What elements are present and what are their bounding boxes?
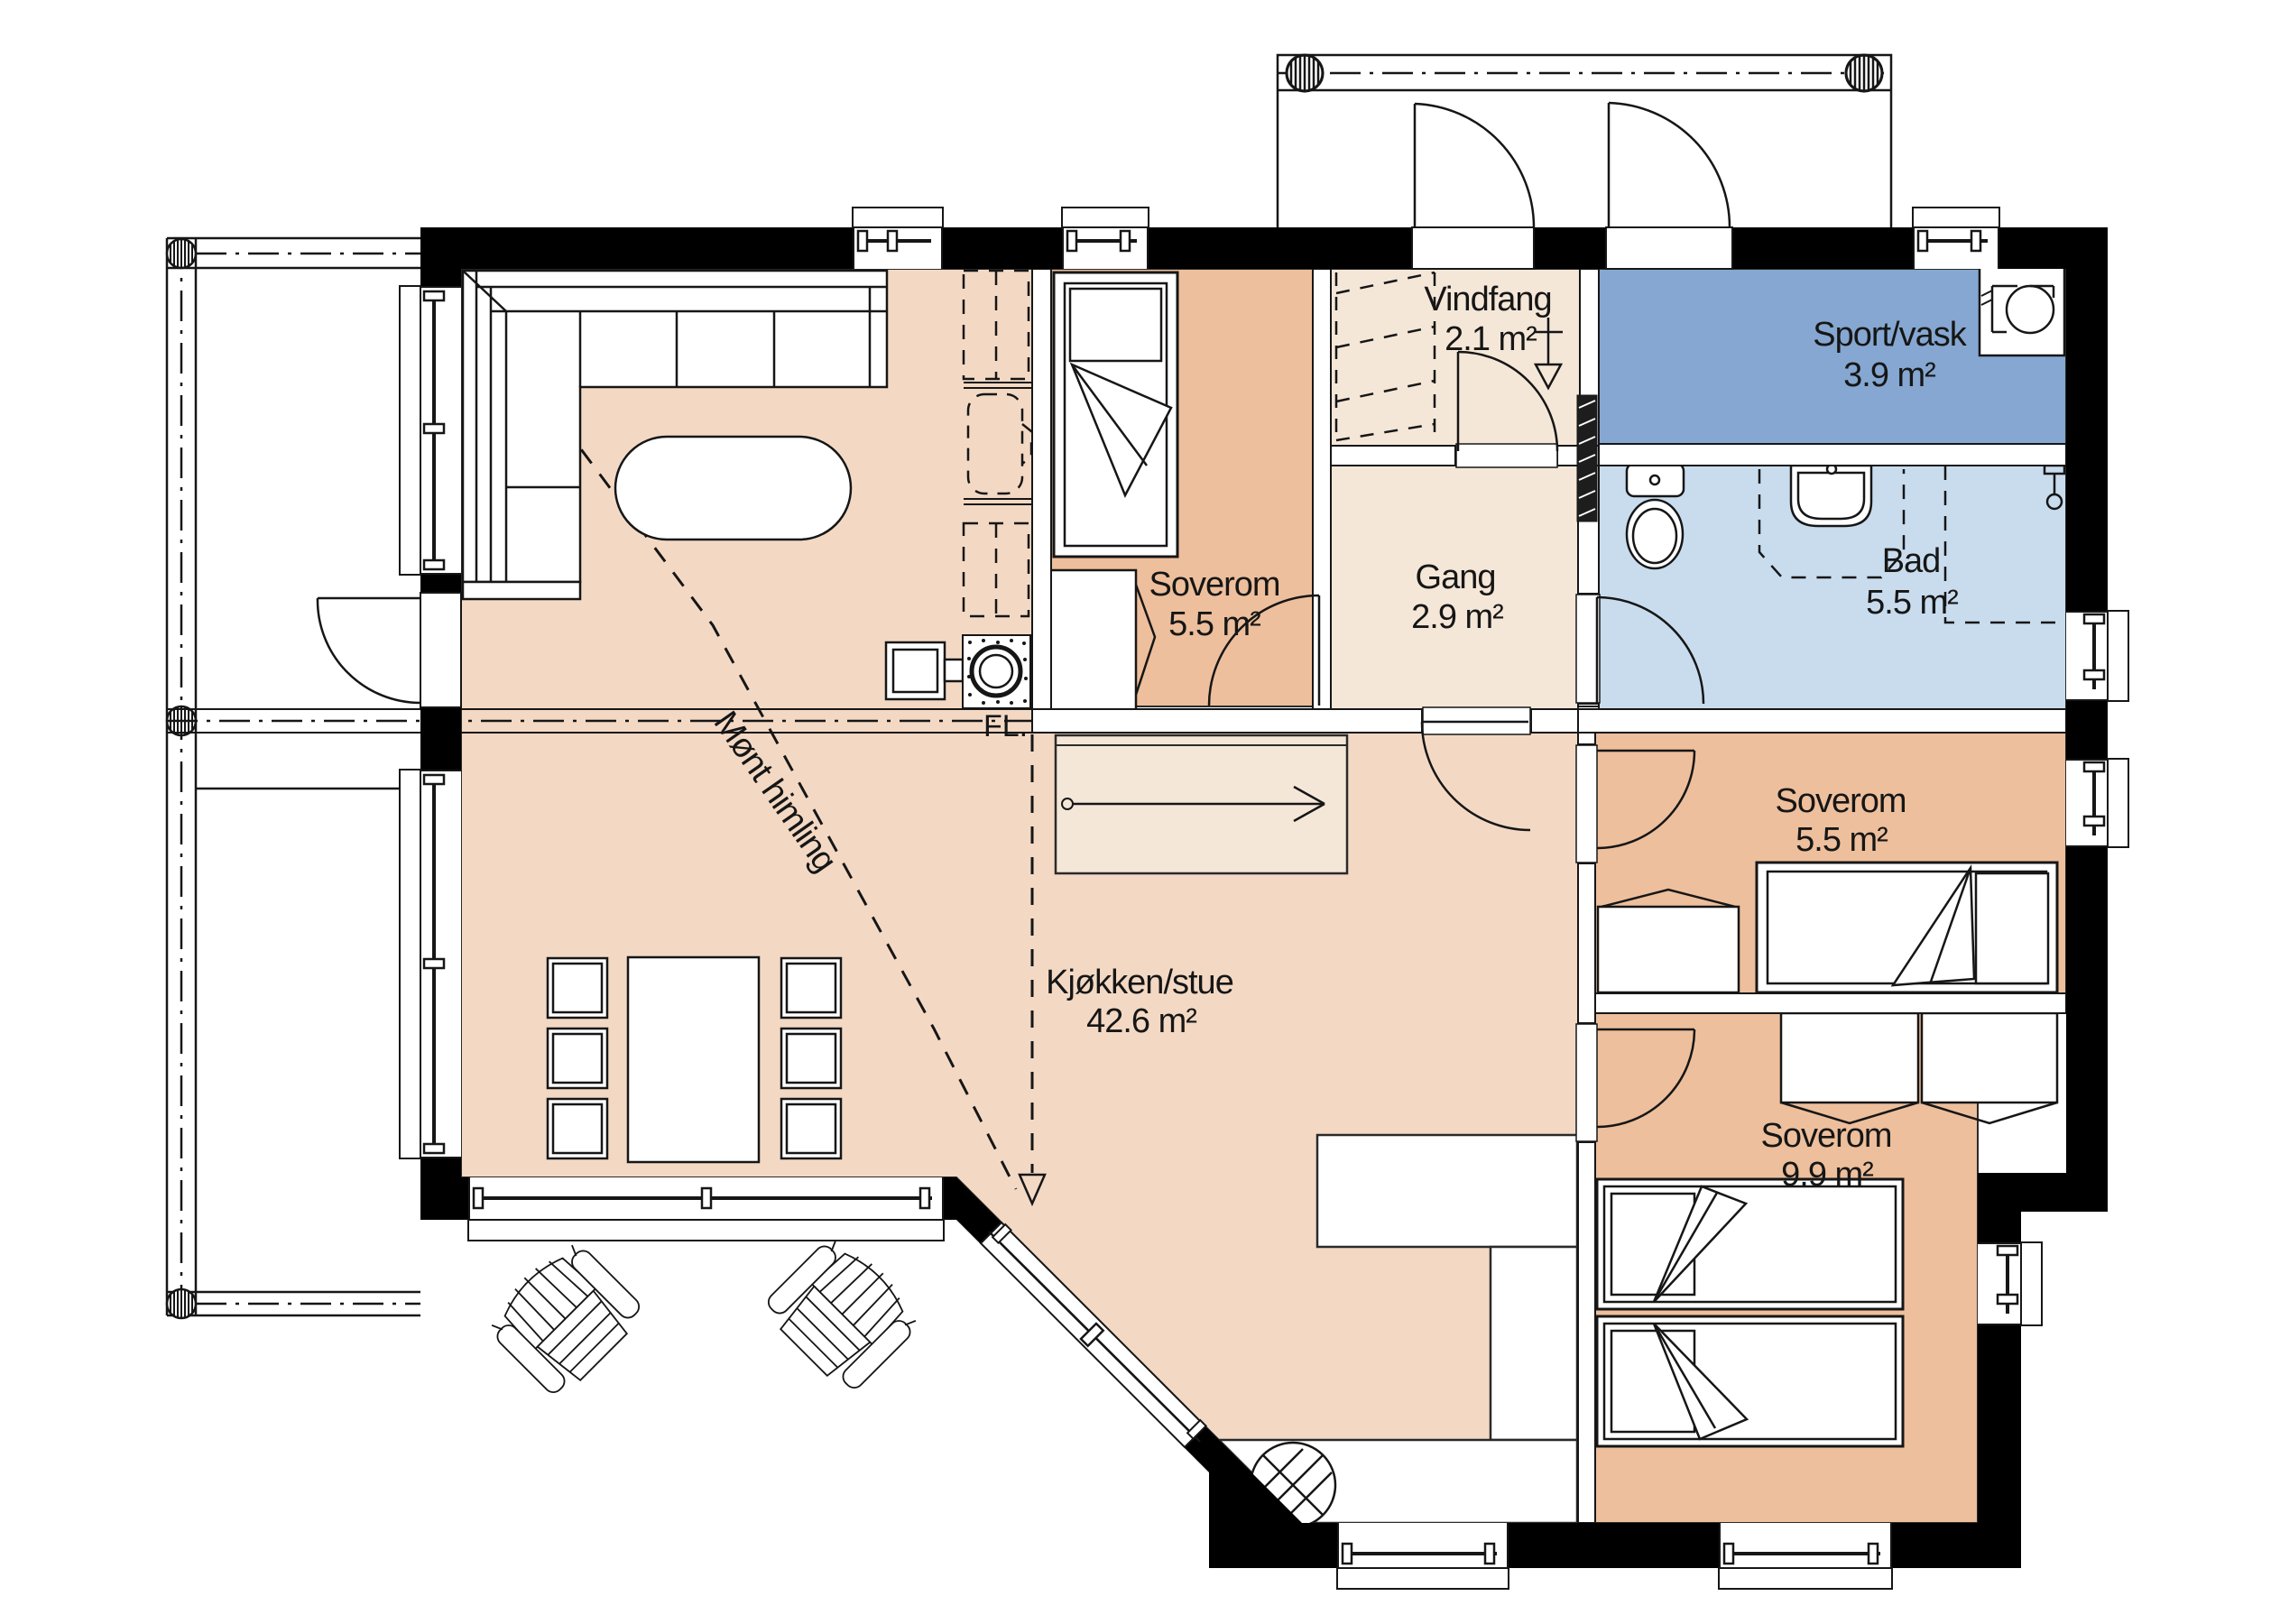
svg-text:FL.: FL. <box>983 709 1028 743</box>
svg-text:Gang: Gang <box>1416 558 1496 596</box>
svg-text:Soverom: Soverom <box>1149 566 1279 604</box>
svg-text:2.1 m²: 2.1 m² <box>1445 320 1537 358</box>
svg-text:Soverom: Soverom <box>1775 782 1906 820</box>
svg-text:Sport/vask: Sport/vask <box>1813 316 1968 354</box>
svg-text:42.6 m²: 42.6 m² <box>1086 1002 1196 1040</box>
svg-text:Kjøkken/stue: Kjøkken/stue <box>1046 964 1233 1001</box>
svg-text:Bad: Bad <box>1882 542 1941 580</box>
svg-text:5.5 m²: 5.5 m² <box>1866 584 1958 622</box>
svg-text:Vindfang: Vindfang <box>1424 281 1551 318</box>
svg-text:5.5 m²: 5.5 m² <box>1795 821 1888 859</box>
svg-text:9.9 m²: 9.9 m² <box>1781 1156 1873 1194</box>
svg-text:5.5 m²: 5.5 m² <box>1168 605 1260 643</box>
svg-text:3.9 m²: 3.9 m² <box>1843 356 1935 394</box>
svg-text:Soverom: Soverom <box>1760 1117 1891 1155</box>
svg-text:2.9 m²: 2.9 m² <box>1411 598 1503 636</box>
